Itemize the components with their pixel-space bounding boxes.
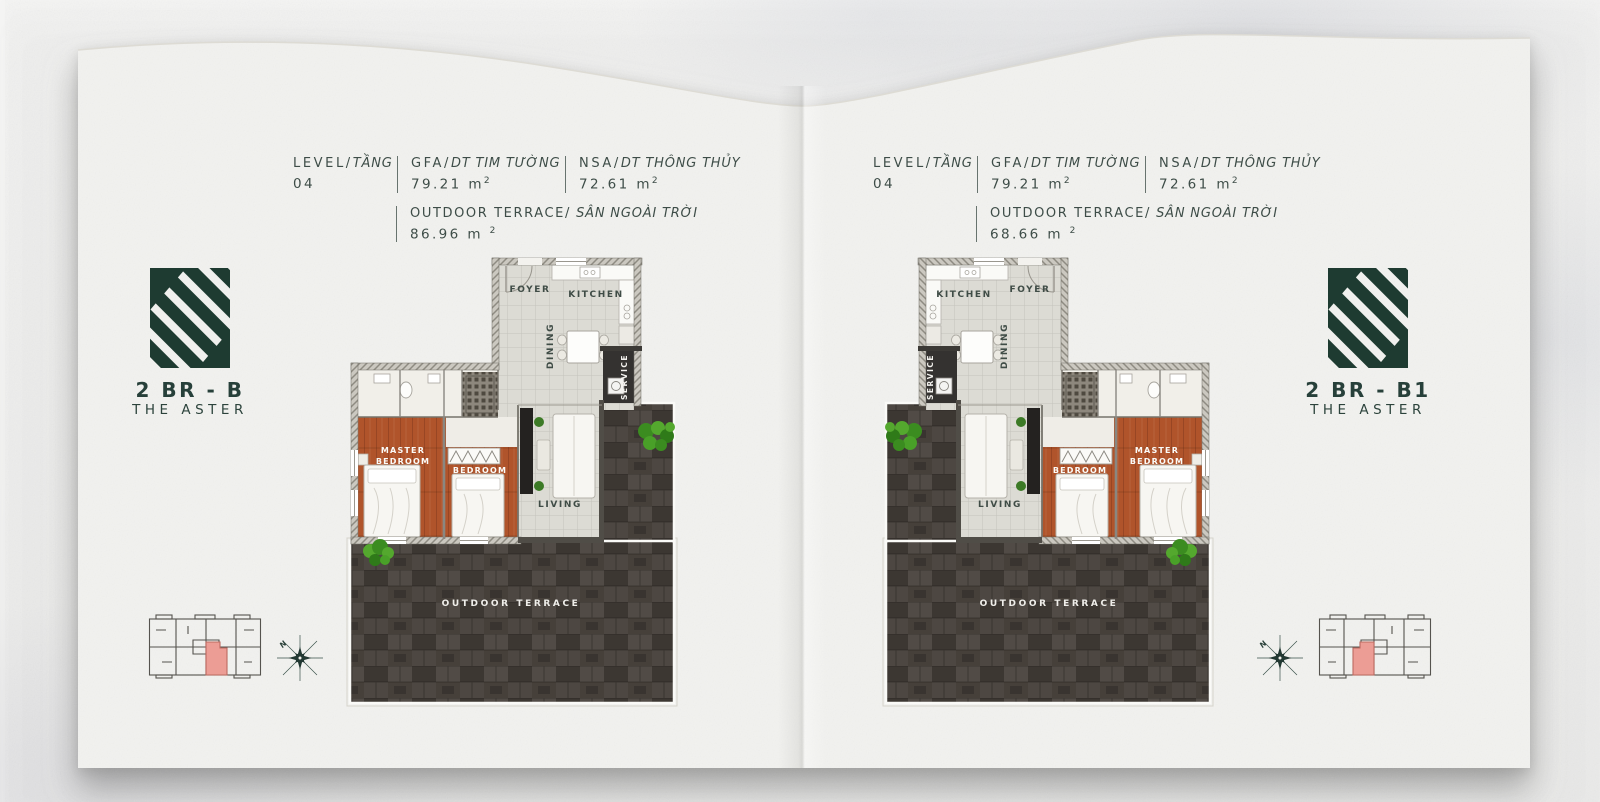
room-label-service: SERVICE xyxy=(926,354,935,400)
room-label-dining: DINING xyxy=(1000,323,1010,369)
compass-north-label: N xyxy=(1258,638,1269,649)
room-label-terrace: OUTDOOR TERRACE xyxy=(442,599,581,609)
stat-outdoor-terrace: OUTDOOR TERRACE/ SÂN NGOÀI TRỜI 68.66 m … xyxy=(976,206,1333,243)
terrace-stat-label: OUTDOOR TERRACE/ xyxy=(410,206,571,221)
room-label-dining: DINING xyxy=(546,323,556,369)
room-label-foyer: FOYER xyxy=(1009,285,1050,295)
gfa-label: GFA/ xyxy=(411,156,451,171)
stat-nsa: NSA/DT THÔNG THỦY 72.61 m2 xyxy=(1145,156,1333,193)
brand-logo xyxy=(1328,268,1408,368)
level-label: LEVEL/ xyxy=(873,156,933,171)
nsa-value: 72.61 m2 xyxy=(1159,176,1319,193)
unit-code: 2 BR - B1 xyxy=(1258,378,1478,402)
terrace-stat-value: 68.66 m 2 xyxy=(990,226,1319,243)
page-fold xyxy=(778,86,826,768)
nsa-value: 72.61 m2 xyxy=(579,176,739,193)
unit-stats: LEVEL/TẦNG 04 GFA/DT TIM TƯỜNG 79.21 m2 … xyxy=(873,156,1333,242)
stat-outdoor-terrace: OUTDOOR TERRACE/ SÂN NGOÀI TRỜI 86.96 m … xyxy=(396,206,753,243)
stat-gfa: GFA/DT TIM TƯỜNG 79.21 m2 xyxy=(977,156,1145,193)
room-label-master-2: BEDROOM xyxy=(1130,457,1184,466)
page-content: LEVEL/TẦNG 04 GFA/DT TIM TƯỜNG 79.21 m2 … xyxy=(78,28,1530,768)
room-label-bedroom: BEDROOM xyxy=(1053,466,1107,475)
level-label: LEVEL/ xyxy=(293,156,353,171)
unit-code: 2 BR - B xyxy=(80,378,300,402)
stat-level: LEVEL/TẦNG 04 xyxy=(873,156,977,192)
stat-gfa: GFA/DT TIM TƯỜNG 79.21 m2 xyxy=(397,156,565,193)
room-label-kitchen: KITCHEN xyxy=(936,290,991,300)
stat-level: LEVEL/TẦNG 04 xyxy=(293,156,397,192)
room-label-foyer: FOYER xyxy=(509,285,550,295)
unit-stats: LEVEL/TẦNG 04 GFA/DT TIM TƯỜNG 79.21 m2 … xyxy=(293,156,753,242)
room-label-living: LIVING xyxy=(978,500,1022,510)
stat-nsa: NSA/DT THÔNG THỦY 72.61 m2 xyxy=(565,156,753,193)
nsa-label: NSA/ xyxy=(579,156,621,171)
gfa-value: 79.21 m2 xyxy=(411,176,551,193)
gfa-label: GFA/ xyxy=(991,156,1031,171)
project-name: THE ASTER xyxy=(80,402,300,418)
gfa-value: 79.21 m2 xyxy=(991,176,1131,193)
room-label-bedroom: BEDROOM xyxy=(453,466,507,475)
brand-logo xyxy=(150,268,230,368)
compass-left: N xyxy=(276,634,324,682)
project-name: THE ASTER xyxy=(1258,402,1478,418)
level-value: 04 xyxy=(873,176,963,192)
compass-right: N xyxy=(1256,634,1304,682)
floor-plan-2br-b: FOYER KITCHEN DINING SERVICE MASTER BEDR… xyxy=(340,250,680,720)
room-label-master-2: BEDROOM xyxy=(376,457,430,466)
floor-plan-2br-b1: FOYER KITCHEN DINING SERVICE MASTER BEDR… xyxy=(880,250,1220,720)
room-label-living: LIVING xyxy=(538,500,582,510)
terrace-stat-value: 86.96 m 2 xyxy=(410,226,739,243)
nsa-label: NSA/ xyxy=(1159,156,1201,171)
terrace-stat-label: OUTDOOR TERRACE/ xyxy=(990,206,1151,221)
room-label-kitchen: KITCHEN xyxy=(568,290,623,300)
keyplan-left xyxy=(148,612,262,680)
room-label-master-1: MASTER xyxy=(1135,446,1179,455)
level-value: 04 xyxy=(293,176,383,192)
compass-north-label: N xyxy=(278,638,289,649)
brochure-spread: LEVEL/TẦNG 04 GFA/DT TIM TƯỜNG 79.21 m2 … xyxy=(0,0,1600,802)
room-label-terrace: OUTDOOR TERRACE xyxy=(980,599,1119,609)
room-label-master-1: MASTER xyxy=(381,446,425,455)
room-label-service: SERVICE xyxy=(620,354,629,400)
keyplan-right xyxy=(1318,612,1432,680)
